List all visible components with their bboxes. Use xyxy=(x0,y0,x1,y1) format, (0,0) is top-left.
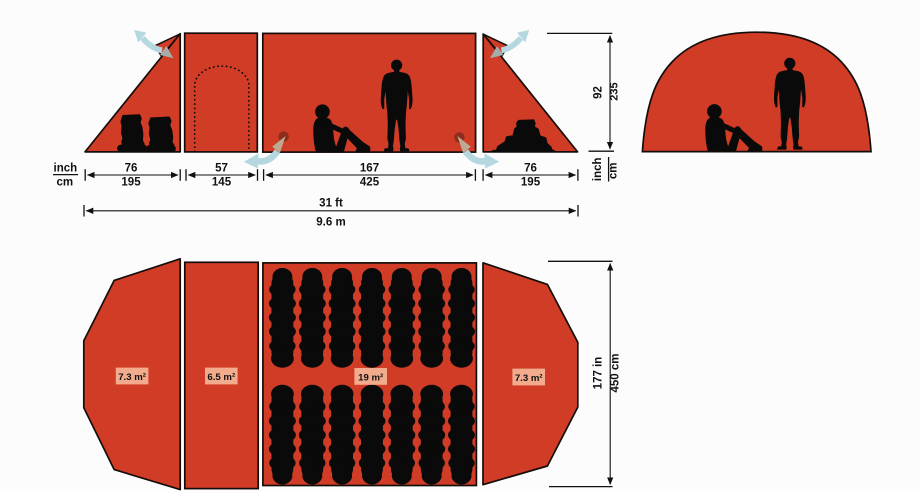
svg-text:450 cm: 450 cm xyxy=(609,353,621,392)
svg-text:inch: inch xyxy=(54,163,78,175)
svg-text:9.6 m: 9.6 m xyxy=(316,216,345,228)
svg-text:167: 167 xyxy=(360,162,379,174)
svg-text:145: 145 xyxy=(212,177,232,189)
svg-text:76: 76 xyxy=(524,162,537,174)
svg-text:235: 235 xyxy=(608,82,620,100)
svg-text:425: 425 xyxy=(360,177,380,189)
svg-text:195: 195 xyxy=(521,177,541,189)
svg-text:7.3 m²: 7.3 m² xyxy=(515,373,543,384)
svg-text:31 ft: 31 ft xyxy=(319,198,343,210)
svg-text:cm: cm xyxy=(57,176,74,188)
svg-text:57: 57 xyxy=(215,162,228,174)
svg-text:6.5 m²: 6.5 m² xyxy=(207,372,235,383)
svg-text:inch: inch xyxy=(592,157,604,181)
svg-text:177 in: 177 in xyxy=(593,357,605,390)
svg-text:7.3 m²: 7.3 m² xyxy=(118,372,146,383)
svg-text:19 m²: 19 m² xyxy=(358,372,383,383)
svg-text:195: 195 xyxy=(121,177,141,189)
svg-text:76: 76 xyxy=(125,162,138,174)
svg-text:92: 92 xyxy=(593,86,605,99)
